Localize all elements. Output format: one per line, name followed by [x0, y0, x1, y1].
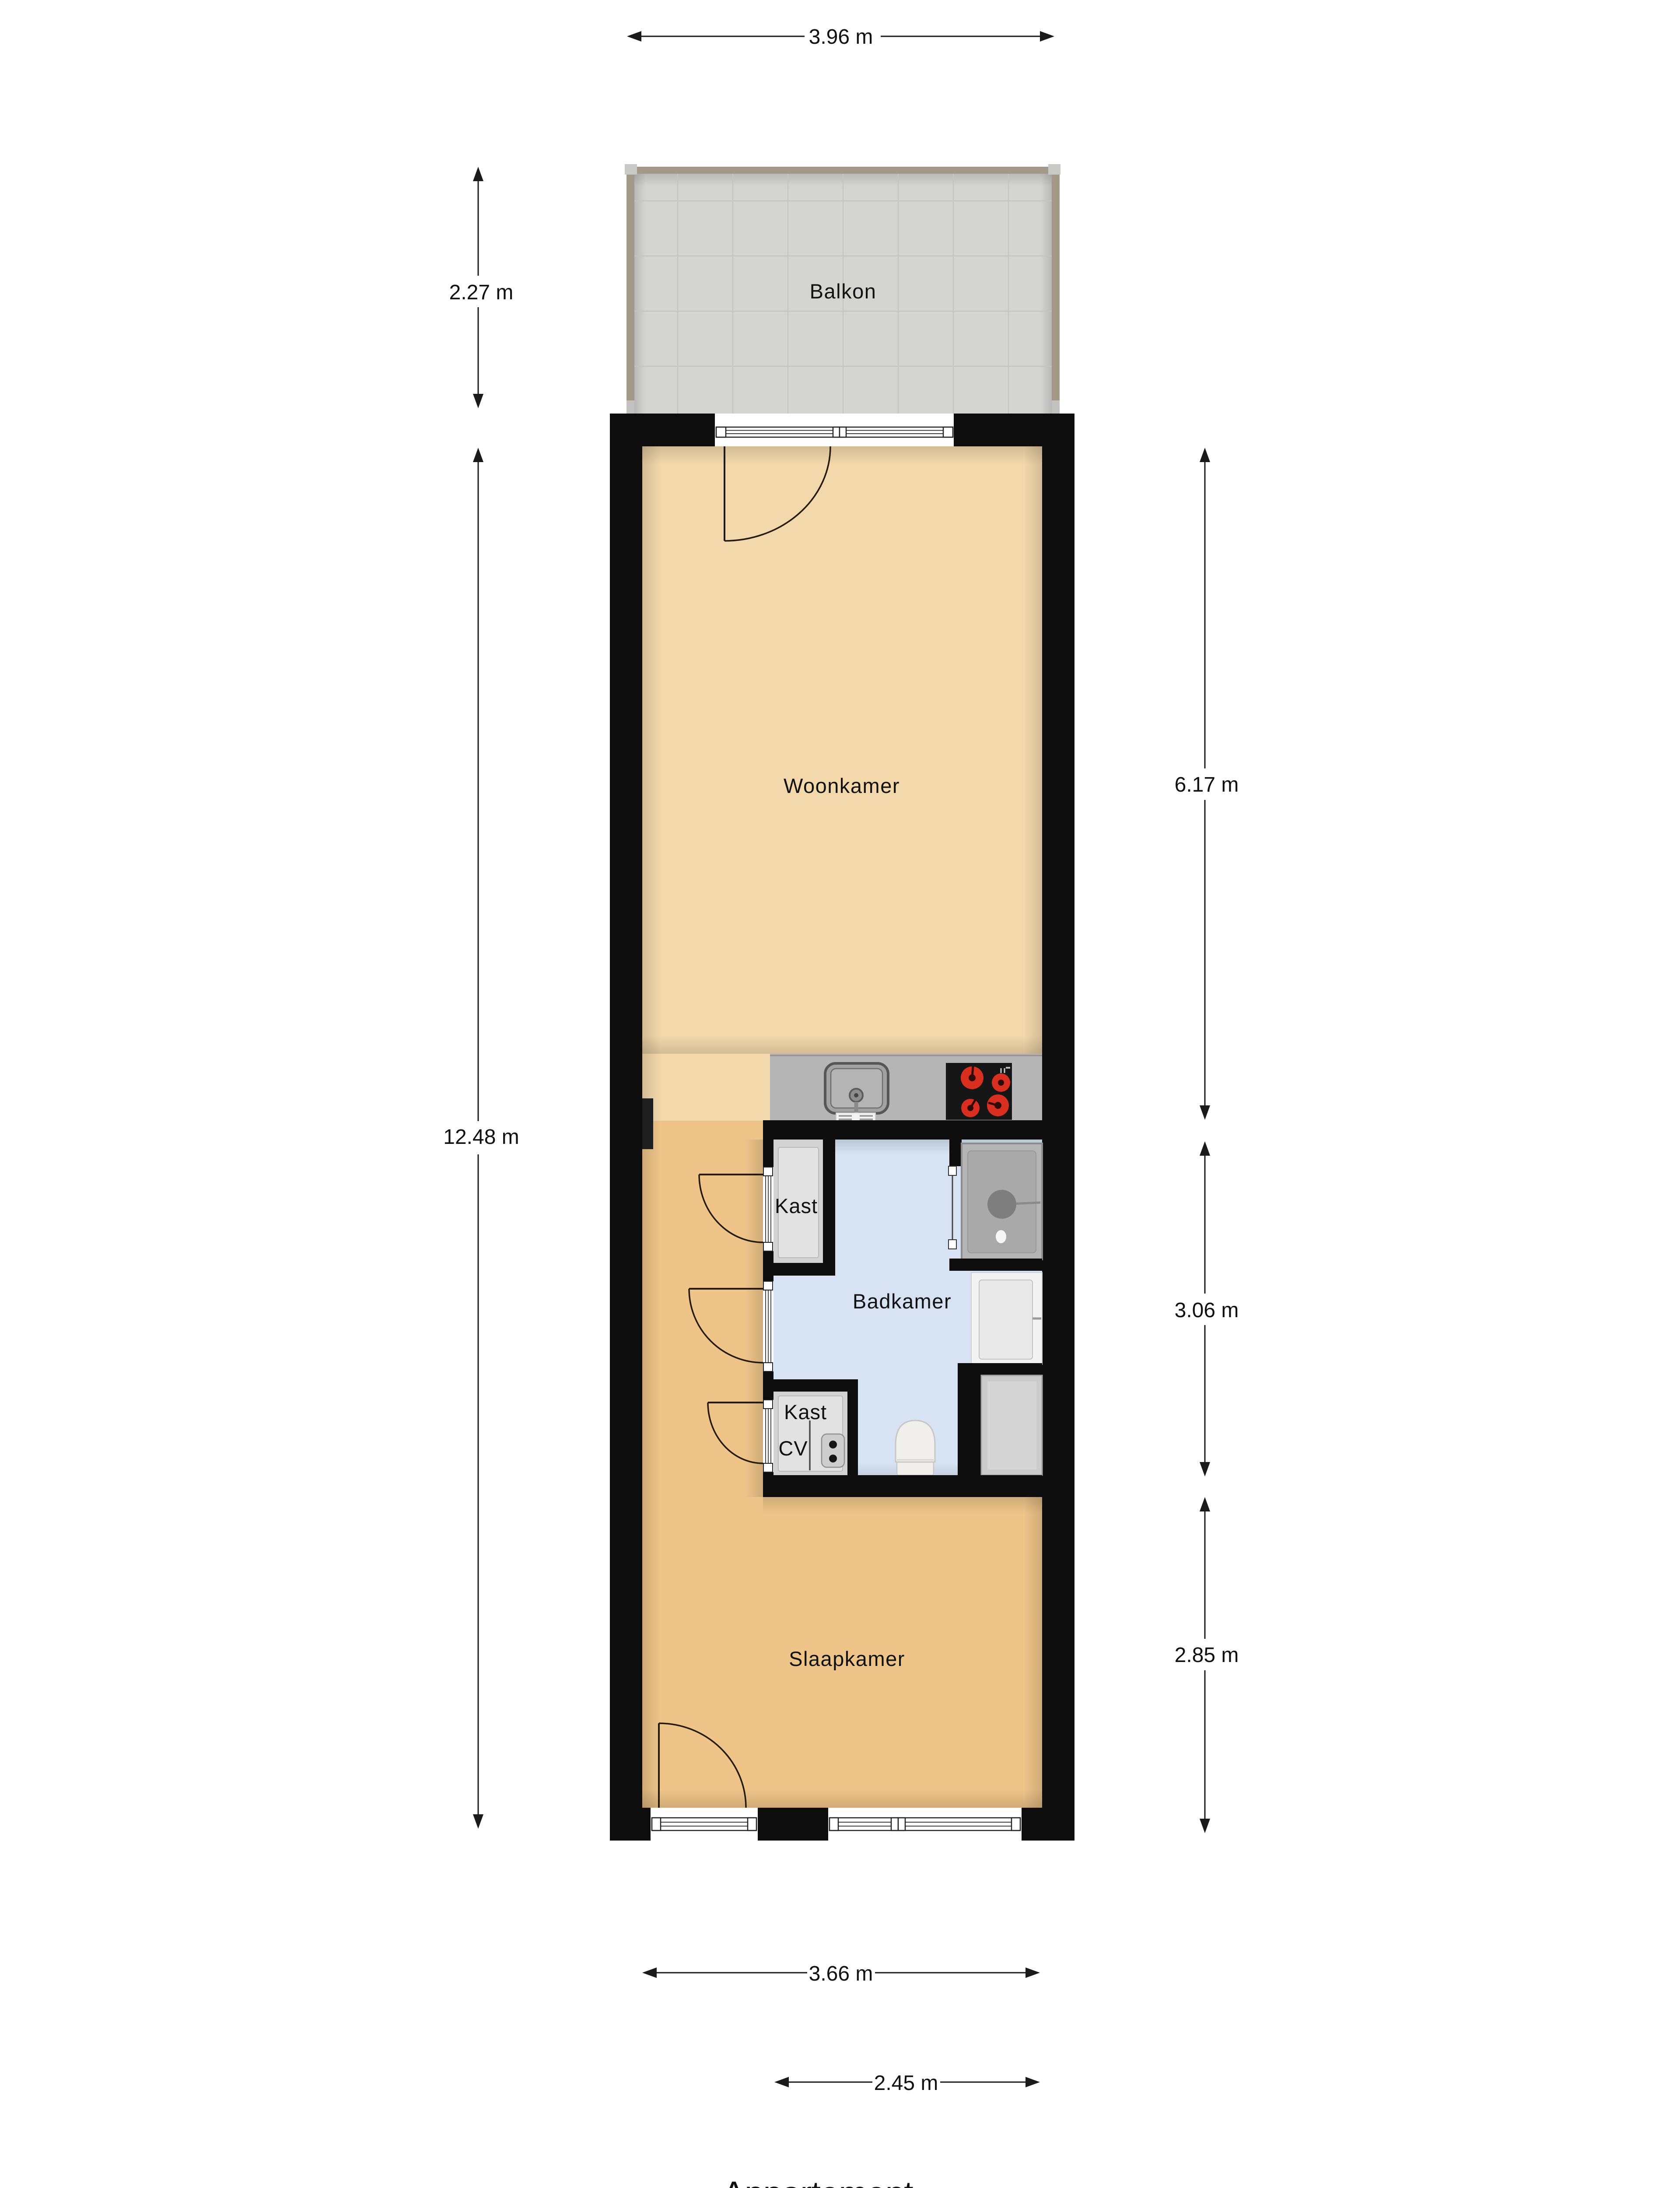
svg-text:12.48 m: 12.48 m — [443, 1126, 519, 1149]
svg-text:Woonkamer: Woonkamer — [784, 774, 900, 797]
svg-text:6.17 m: 6.17 m — [1175, 773, 1239, 796]
svg-text:3.06 m: 3.06 m — [1175, 1299, 1239, 1322]
svg-text:Appartement: Appartement — [722, 2174, 913, 2188]
svg-text:3.66 m: 3.66 m — [809, 1962, 873, 1985]
svg-text:2.45 m: 2.45 m — [874, 2072, 938, 2095]
svg-text:2.85 m: 2.85 m — [1175, 1644, 1239, 1667]
svg-text:Balkon: Balkon — [810, 280, 877, 303]
svg-text:Kast: Kast — [784, 1400, 827, 1424]
svg-text:Badkamer: Badkamer — [853, 1290, 952, 1313]
svg-text:CV: CV — [778, 1437, 808, 1460]
svg-text:3.96 m: 3.96 m — [809, 25, 873, 49]
svg-text:Slaapkamer: Slaapkamer — [789, 1647, 905, 1670]
svg-text:2.27 m: 2.27 m — [449, 281, 514, 304]
svg-text:Kast: Kast — [775, 1194, 818, 1217]
